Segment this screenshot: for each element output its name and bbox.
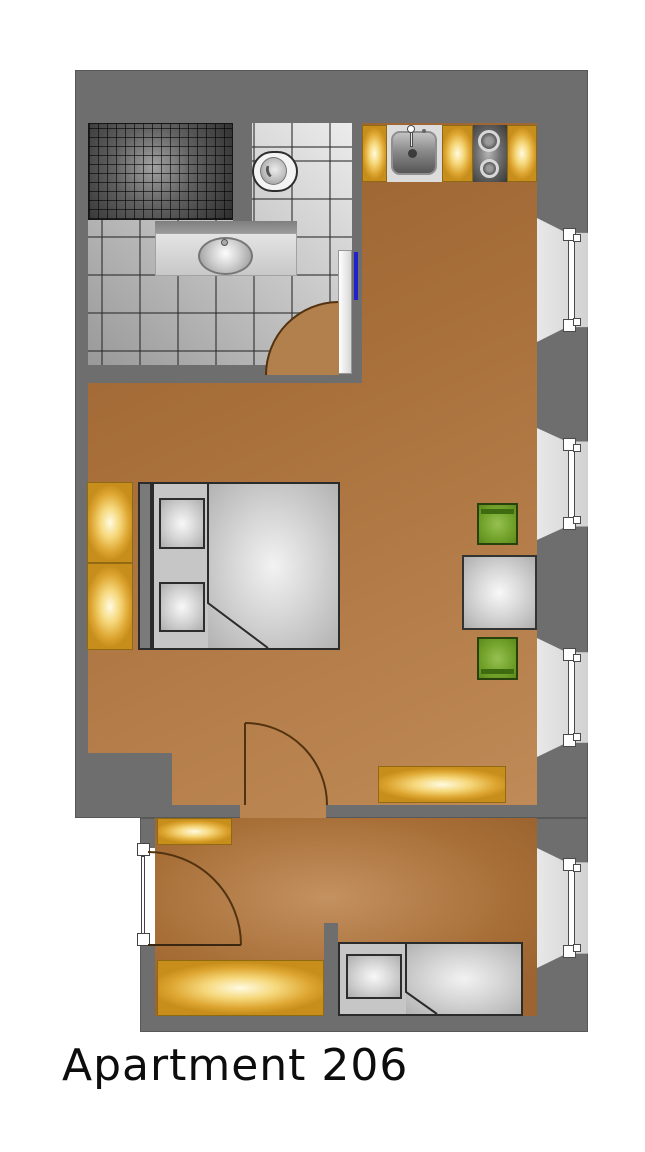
stove [473, 125, 507, 182]
window-frame [568, 443, 575, 525]
stove-burner-1 [478, 130, 500, 152]
floor-plan: Apartment 206 [0, 0, 645, 1152]
kitchen-sink-unit [387, 125, 442, 182]
window-handle-top-small [573, 654, 581, 662]
plan-title: Apartment 206 [62, 1040, 408, 1091]
radiator-hall [157, 818, 232, 845]
chair-backrest [481, 509, 514, 514]
entry-door-hinge-top [137, 843, 150, 856]
vanity-counter-edge [155, 221, 297, 233]
bathroom-door-marker [354, 252, 358, 300]
pillow-2 [159, 582, 205, 632]
sink-knob [422, 129, 426, 133]
pillow-1 [159, 498, 205, 549]
shower [88, 123, 233, 220]
bathroom-door-leaf [338, 250, 352, 374]
entry-door-hinge-bottom [137, 933, 150, 946]
stove-burner-2 [480, 159, 499, 178]
chair-top [477, 503, 518, 545]
toilet [252, 151, 298, 192]
single-bed-pillow [346, 954, 402, 999]
window-1 [537, 218, 588, 342]
sink-drain [408, 149, 417, 158]
wardrobe-upper [87, 482, 133, 563]
chair-backrest [481, 669, 514, 674]
wardrobe-lower [87, 563, 133, 650]
window-handle-bottom-small [573, 944, 581, 952]
radiator-living-room [378, 766, 506, 803]
bed-headboard [138, 482, 152, 650]
single-bed-blanket [406, 944, 521, 1014]
radiator-entry [157, 960, 324, 1016]
kitchen-cabinet-1 [362, 125, 387, 182]
table [462, 555, 537, 630]
kitchen-cabinet-2 [442, 125, 473, 182]
window-2 [537, 428, 588, 540]
window-4 [537, 848, 588, 968]
window-handle-top-small [573, 234, 581, 242]
kitchen-cabinet-3 [507, 125, 537, 182]
sink-faucet-head [407, 125, 415, 133]
window-handle-bottom-small [573, 733, 581, 741]
window-handle-top-small [573, 864, 581, 872]
window-handle-bottom-small [573, 318, 581, 326]
window-frame [568, 233, 575, 327]
window-frame [568, 863, 575, 953]
window-handle-top-small [573, 444, 581, 452]
entry-door-jamb-line [141, 856, 145, 934]
chair-bottom [477, 637, 518, 680]
window-3 [537, 638, 588, 757]
window-handle-bottom-small [573, 516, 581, 524]
shower-partition-wall [233, 123, 252, 227]
window-frame [568, 653, 575, 742]
vanity-faucet [221, 239, 228, 246]
double-bed-blanket [208, 484, 338, 648]
hall-partition-wall [324, 923, 338, 1016]
